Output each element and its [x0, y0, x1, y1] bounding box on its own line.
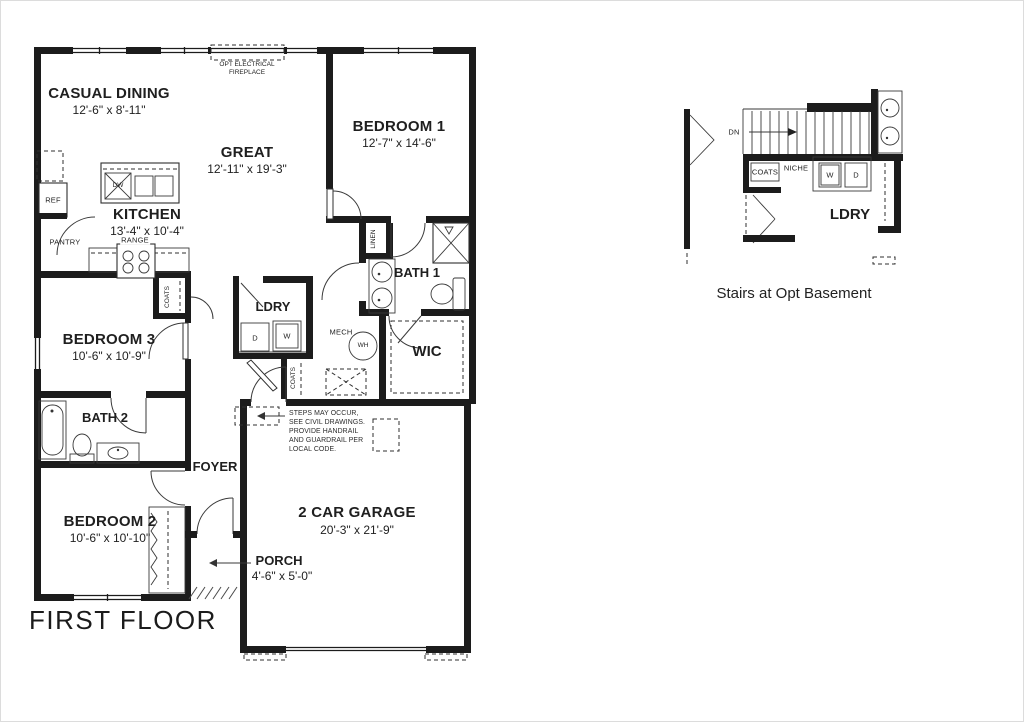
front-door: [197, 498, 233, 534]
coats-foyer-door: [247, 360, 277, 391]
bath2-label: BATH 2: [82, 410, 128, 426]
bedroom2-label: BEDROOM 2: [64, 513, 157, 531]
range: [117, 244, 155, 278]
bath1-door: [391, 223, 425, 257]
linen-label: LINEN: [370, 229, 378, 248]
bedroom1-dims: 12'-7" x 14'-6": [362, 136, 436, 150]
casual-dining-label: CASUAL DINING: [48, 85, 170, 103]
ldry-label: LDRY: [256, 299, 291, 315]
steps-note: STEPS MAY OCCUR, SEE CIVIL DRAWINGS. PRO…: [289, 410, 365, 455]
dn-arrow: [788, 128, 797, 136]
toilet-bowl: [431, 284, 453, 304]
toilet2-bowl: [73, 434, 91, 456]
pantry-label: PANTRY: [50, 238, 81, 247]
porch-label: PORCH: [256, 553, 303, 569]
bedroom3-door: [183, 323, 188, 359]
bedroom1-label: BEDROOM 1: [353, 118, 446, 136]
dw-label: DW: [113, 182, 124, 190]
detail-laundry-counter: [813, 157, 871, 191]
detail-coats-label: COATS: [752, 168, 778, 177]
casual-dining-dims: 12'-6" x 8'-11": [73, 103, 146, 117]
garage-post: [373, 419, 399, 451]
bedroom1-door: [327, 189, 333, 219]
porch-dims: 4'-6" x 5'-0": [252, 569, 312, 583]
stairs-detail: [684, 89, 903, 267]
stairs-caption: Stairs at Opt Basement: [716, 285, 871, 303]
garage-dims: 20'-3" x 21'-9": [320, 523, 394, 537]
dryer-label: D: [252, 334, 258, 343]
bedroom2-door: [151, 471, 185, 505]
coats-hall-door: [191, 297, 213, 319]
detail-dryer-label: D: [853, 171, 859, 180]
detail-left-wall: [684, 109, 690, 249]
ref-label: REF: [45, 196, 61, 205]
stair-treads: [752, 111, 869, 154]
wic-label: WIC: [412, 343, 441, 361]
garage-apron-left: [244, 654, 286, 660]
porch-arrow: [209, 559, 217, 567]
kitchen-label: KITCHEN: [113, 206, 181, 224]
garage-apron-right: [425, 654, 467, 660]
coats-hall-label: COATS: [164, 286, 172, 308]
wh-label: WH: [358, 342, 369, 350]
note-arrow: [257, 412, 265, 420]
bedroom3-dims: 10'-6" x 10'-9": [72, 349, 146, 363]
opt-fireplace-label: OPT ELECTRICAL FIREPLACE: [219, 61, 274, 77]
detail-coats-door: [753, 195, 775, 219]
utility-fixtures: [180, 281, 463, 397]
detail-washer-label: W: [826, 171, 833, 180]
mech-label: MECH: [330, 328, 353, 337]
toilet-tank: [453, 278, 465, 310]
detail-ldry-label: LDRY: [830, 206, 870, 224]
great-dims: 12'-11" x 19'-3": [207, 162, 287, 176]
bedroom3-label: BEDROOM 3: [63, 331, 156, 349]
niche-label: NICHE: [784, 164, 808, 173]
first-floor-title: FIRST FLOOR: [29, 605, 217, 636]
floor-plan-page: CASUAL DINING 12'-6" x 8'-11" OPT ELECTR…: [0, 0, 1024, 722]
bath1-label: BATH 1: [394, 265, 440, 281]
dn-label: DN: [728, 128, 739, 137]
detail-door: [690, 115, 714, 165]
great-label: GREAT: [221, 144, 273, 162]
hall-door: [322, 263, 359, 300]
detail-vanity: [878, 91, 902, 153]
coats-foyer-label: COATS: [290, 367, 298, 389]
foyer-label: FOYER: [193, 459, 238, 475]
range-label: RANGE: [120, 236, 150, 245]
washer-label: W: [283, 332, 290, 341]
bedroom2-dims: 10'-6" x 10'-10": [70, 531, 150, 545]
vanity2: [97, 443, 139, 463]
garage-label: 2 CAR GARAGE: [298, 504, 415, 522]
